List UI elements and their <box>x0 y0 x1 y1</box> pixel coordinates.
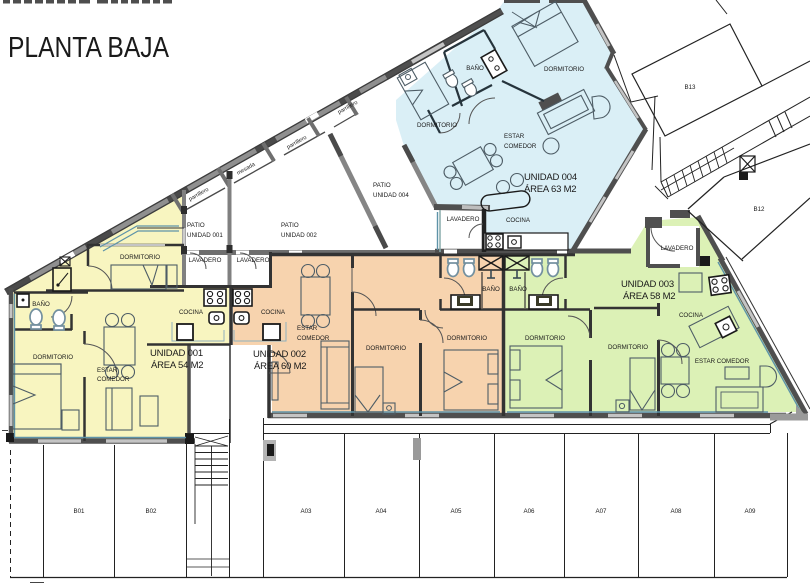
svg-text:ÁREA 60 M2: ÁREA 60 M2 <box>254 361 306 372</box>
svg-text:PATIO: PATIO <box>187 222 205 229</box>
svg-text:PLANTA BAJA: PLANTA BAJA <box>8 32 169 64</box>
svg-text:A04: A04 <box>375 508 387 515</box>
svg-text:UNIDAD 004: UNIDAD 004 <box>373 192 409 199</box>
svg-text:LAVADERO: LAVADERO <box>189 257 222 264</box>
svg-text:LAVADERO: LAVADERO <box>447 216 480 223</box>
svg-text:UNIDAD 001: UNIDAD 001 <box>150 348 203 359</box>
svg-text:UNIDAD 001: UNIDAD 001 <box>187 232 223 239</box>
svg-text:BAÑO: BAÑO <box>509 286 527 293</box>
svg-text:PATIO: PATIO <box>281 222 299 229</box>
svg-text:LAVADERO: LAVADERO <box>661 245 694 252</box>
svg-text:ESTAR: ESTAR <box>97 367 118 374</box>
svg-text:COMEDOR: COMEDOR <box>97 376 130 383</box>
svg-text:DORMITORIO: DORMITORIO <box>447 335 487 342</box>
svg-text:ÁREA 58 M2: ÁREA 58 M2 <box>623 291 675 302</box>
svg-text:COCINA: COCINA <box>506 217 531 224</box>
svg-text:B12: B12 <box>753 206 765 213</box>
svg-text:BAÑO: BAÑO <box>32 301 50 308</box>
svg-text:ESTAR COMEDOR: ESTAR COMEDOR <box>695 358 750 365</box>
svg-text:B01: B01 <box>73 508 85 515</box>
svg-text:DORMITORIO: DORMITORIO <box>544 66 584 73</box>
svg-text:COCINA: COCINA <box>261 309 286 316</box>
svg-text:COMEDOR: COMEDOR <box>504 143 537 150</box>
svg-text:B02: B02 <box>145 508 157 515</box>
svg-text:UNIDAD 002: UNIDAD 002 <box>253 349 306 360</box>
svg-text:A03: A03 <box>300 508 312 515</box>
svg-text:B13: B13 <box>684 84 696 91</box>
svg-text:ESTAR: ESTAR <box>504 133 525 140</box>
svg-text:UNIDAD 002: UNIDAD 002 <box>281 232 317 239</box>
svg-text:COMEDOR: COMEDOR <box>297 335 330 342</box>
svg-text:DORMITORIO: DORMITORIO <box>120 254 160 261</box>
svg-text:A06: A06 <box>523 508 535 515</box>
svg-text:A09: A09 <box>744 508 756 515</box>
svg-text:DORMITORIO: DORMITORIO <box>366 345 406 352</box>
svg-text:LAVADERO: LAVADERO <box>237 257 270 264</box>
svg-text:A07: A07 <box>595 508 607 515</box>
svg-text:UNIDAD 003: UNIDAD 003 <box>621 279 674 290</box>
svg-text:ESTAR: ESTAR <box>297 325 318 332</box>
svg-text:DORMITORIO: DORMITORIO <box>33 354 73 361</box>
svg-text:ÁREA 54 M2: ÁREA 54 M2 <box>151 360 203 371</box>
svg-text:BAÑO: BAÑO <box>482 286 500 293</box>
svg-text:COCINA: COCINA <box>179 309 204 316</box>
svg-text:A08: A08 <box>670 508 682 515</box>
svg-text:DORMITORIO: DORMITORIO <box>525 335 565 342</box>
svg-text:BAÑO: BAÑO <box>466 65 484 72</box>
svg-text:A05: A05 <box>450 508 462 515</box>
svg-text:DORMITORIO: DORMITORIO <box>608 344 648 351</box>
svg-text:ÁREA 63 M2: ÁREA 63 M2 <box>524 184 576 195</box>
svg-text:PATIO: PATIO <box>373 182 391 189</box>
svg-text:DORMITORIO: DORMITORIO <box>417 122 457 129</box>
svg-text:UNIDAD 004: UNIDAD 004 <box>524 172 577 183</box>
svg-text:COCINA: COCINA <box>679 312 704 319</box>
